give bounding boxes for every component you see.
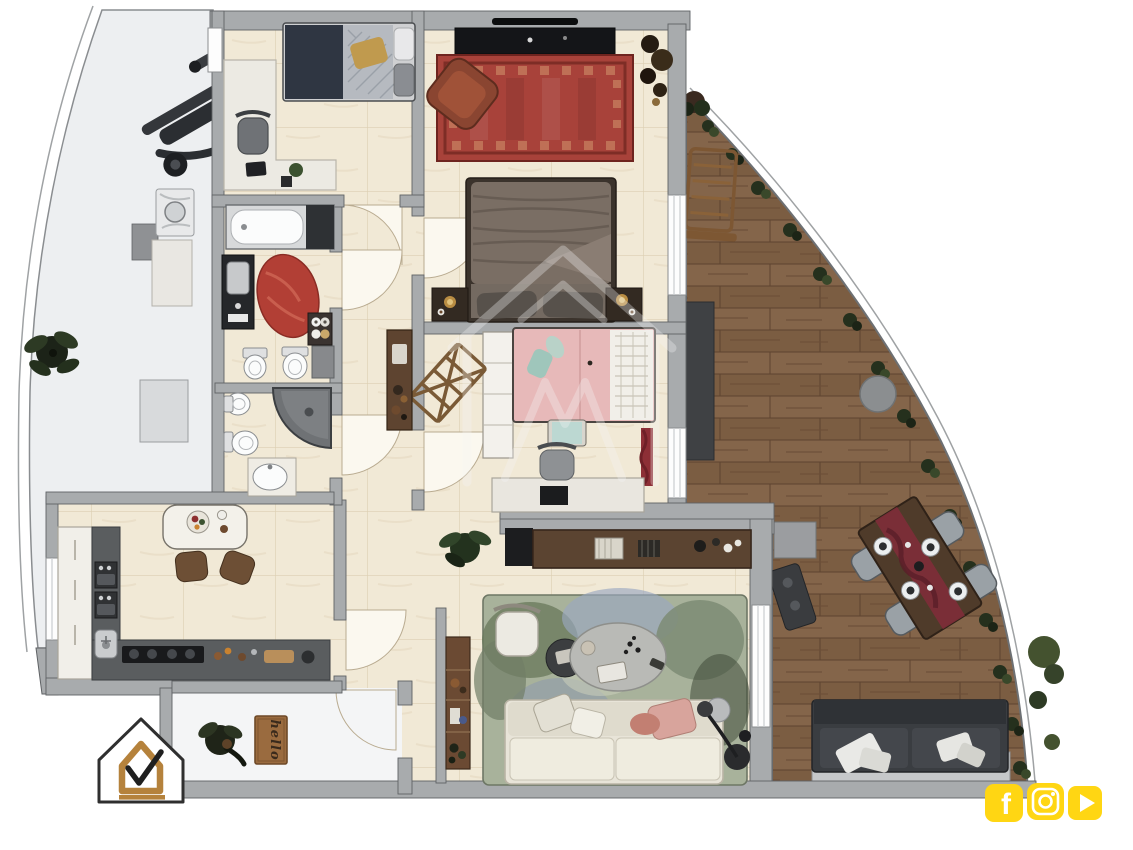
room-hallway: [387, 330, 412, 430]
cream-sofa: [505, 692, 723, 784]
dining-chair[interactable]: [175, 550, 209, 582]
window-master: [668, 195, 686, 295]
bathtub: [226, 205, 334, 249]
floor-plan-canvas: hello f: [0, 0, 1133, 850]
pillow: [394, 64, 414, 96]
dark-floor-mat: [684, 302, 714, 460]
dark-blanket: [285, 25, 343, 99]
toilet: [282, 347, 308, 379]
desk-chair[interactable]: [540, 450, 574, 480]
window-kids: [668, 428, 686, 498]
laptop: [540, 486, 568, 505]
plant-small: [289, 163, 303, 177]
youtube-icon[interactable]: [1068, 786, 1102, 820]
cooktop: [122, 646, 204, 663]
facebook-glyph: f: [1001, 788, 1012, 821]
black-cabinet: [505, 528, 533, 566]
terrace-gray-box: [774, 522, 816, 558]
doormat-text: hello: [267, 719, 282, 760]
narrow-shelf: [446, 637, 470, 769]
pink-round-pillow: [630, 713, 660, 735]
window-kitchen: [46, 558, 58, 640]
shelf-unit: [483, 332, 513, 458]
oval-coffee-table: [570, 623, 666, 691]
facebook-icon[interactable]: f: [985, 784, 1023, 822]
bidet: [243, 348, 267, 379]
corner-bushes: [1028, 636, 1064, 750]
speaker: [281, 176, 292, 187]
storage-cabinet-2: [140, 380, 188, 442]
tv: [492, 18, 578, 25]
instagram-icon[interactable]: [1027, 783, 1064, 820]
sink-counter: [248, 458, 296, 496]
single-bed: [283, 23, 415, 101]
laptop: [245, 161, 266, 177]
social-icons[interactable]: f: [985, 783, 1102, 822]
dark-vanity-sink: [222, 255, 254, 329]
pillow: [394, 28, 414, 60]
bidet: [224, 393, 250, 415]
window-bedroom2: [208, 28, 222, 72]
round-gray-table: [860, 376, 896, 412]
corner-sink: [95, 630, 117, 658]
sideboard: [533, 530, 751, 568]
gray-cabinet: [312, 346, 334, 378]
tv-console: [455, 28, 615, 54]
console-table: [387, 330, 412, 430]
logo-underline: [119, 795, 165, 800]
window-living: [752, 605, 770, 727]
storage-cabinet: [152, 240, 192, 306]
kitchen-table: [163, 505, 247, 549]
towel-shelf: [308, 313, 332, 345]
washing-machine: [156, 189, 194, 236]
outdoor-sofa: [812, 700, 1010, 794]
toilet: [224, 431, 258, 455]
nightstand-left: [432, 288, 468, 321]
hello-doormat: hello: [255, 716, 287, 764]
